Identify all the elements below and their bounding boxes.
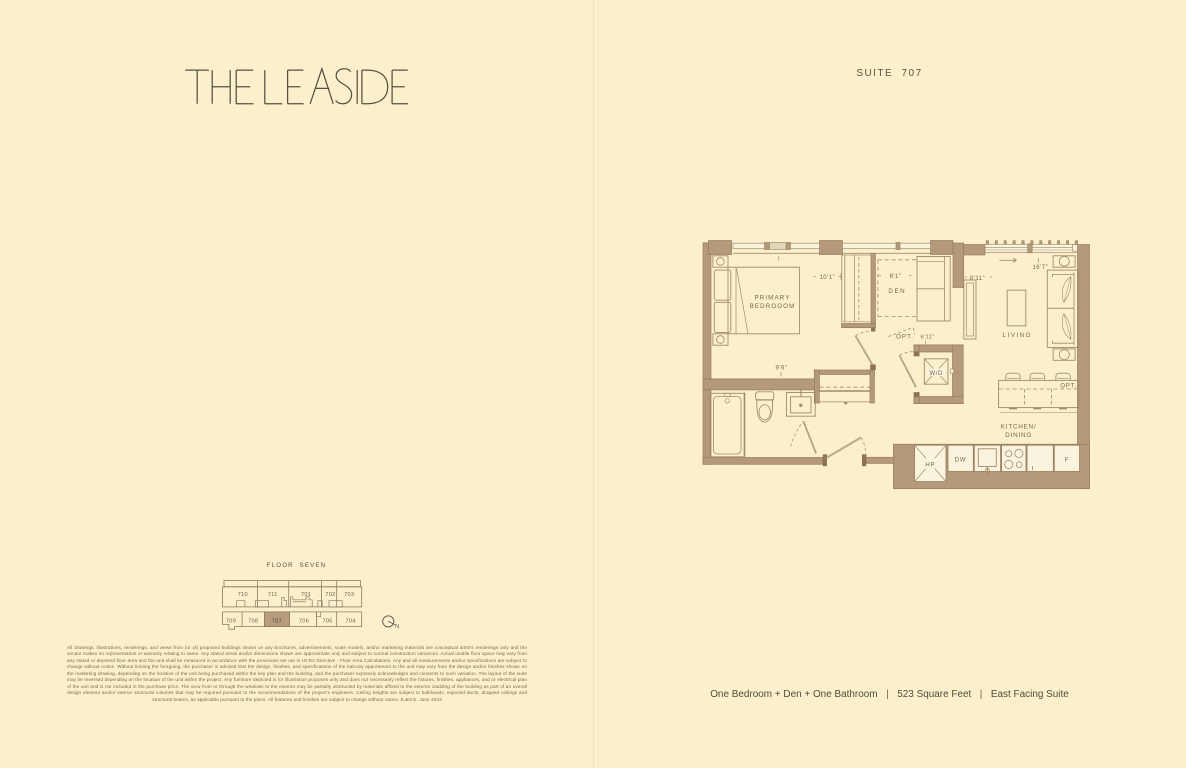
svg-text:707: 707	[272, 619, 282, 625]
svg-text:703: 703	[344, 592, 354, 598]
svg-text:710: 710	[238, 592, 248, 598]
svg-text:N: N	[395, 624, 399, 630]
svg-text:706: 706	[299, 619, 309, 625]
svg-text:704: 704	[345, 619, 355, 625]
svg-text:701: 701	[301, 592, 311, 598]
svg-text:708: 708	[248, 619, 258, 625]
svg-text:711: 711	[268, 592, 278, 598]
svg-text:709: 709	[226, 619, 236, 625]
svg-text:702: 702	[325, 592, 335, 598]
svg-text:705: 705	[322, 619, 332, 625]
